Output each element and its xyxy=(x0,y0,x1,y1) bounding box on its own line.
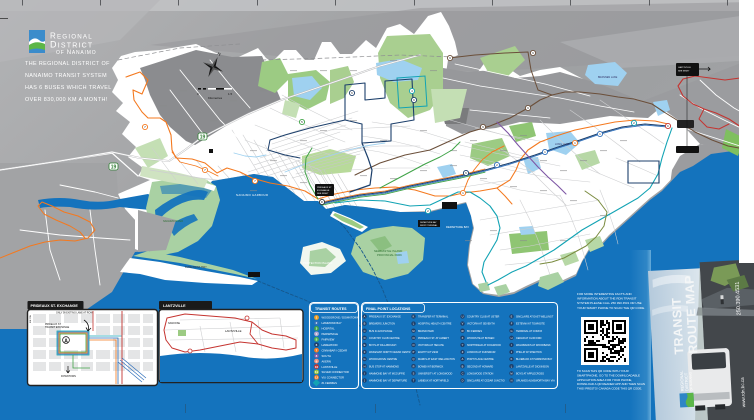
svg-text:R: R xyxy=(413,364,415,368)
svg-text:BRANNEN LAKE: BRANNEN LAKE xyxy=(598,76,618,79)
svg-text:COUNTRY CLUB CENTRE: COUNTRY CLUB CENTRE xyxy=(369,337,400,340)
svg-text:B: B xyxy=(462,364,464,368)
svg-text:NANAIMO TRANSIT SYSTEM: NANAIMO TRANSIT SYSTEM xyxy=(25,73,107,79)
svg-text:BRAND PARK: BRAND PARK xyxy=(418,330,434,333)
svg-text:S: S xyxy=(413,371,415,375)
svg-text:G: G xyxy=(363,357,365,361)
svg-text:NORTHFIELD AT DOGWOOD: NORTHFIELD AT DOGWOOD xyxy=(467,344,501,347)
svg-text:PRIDEAUX ST. EXCHANGE: PRIDEAUX ST. EXCHANGE xyxy=(369,316,401,319)
svg-text:TRANSIT EXCHANGE: TRANSIT EXCHANGE xyxy=(45,326,70,329)
svg-text:NANOOSE: NANOOSE xyxy=(168,322,180,325)
svg-text:Kilometres: Kilometres xyxy=(208,96,223,100)
svg-text:CINNABAR / CEDAR: CINNABAR / CEDAR xyxy=(322,348,348,352)
svg-text:C: C xyxy=(462,371,464,375)
svg-text:DOWNTOWN: DOWNTOWN xyxy=(61,375,76,378)
svg-text:HAS 6 BUSES WHICH TRAVEL: HAS 6 BUSES WHICH TRAVEL xyxy=(25,85,112,91)
svg-text:BLUEBACK AT HAMMOND BAY: BLUEBACK AT HAMMOND BAY xyxy=(516,358,553,361)
svg-text:N: N xyxy=(413,336,415,340)
svg-text:HAMMOND BAY AT DEPARTURE: HAMMOND BAY AT DEPARTURE xyxy=(369,380,407,383)
svg-text:NANAIMO RIVER: NANAIMO RIVER xyxy=(163,220,183,223)
svg-text:WALDBANKS AT WOODBANK: WALDBANKS AT WOODBANK xyxy=(516,344,551,347)
svg-text:Q: Q xyxy=(412,357,414,361)
svg-text:BUS STOP AT HAMMOND: BUS STOP AT HAMMOND xyxy=(369,365,399,368)
svg-text:UPLANDS ALMSWORTH BAY VIA: UPLANDS ALMSWORTH BAY VIA xyxy=(516,380,555,383)
svg-text:A: A xyxy=(64,338,68,344)
svg-text:LANTZVILLE: LANTZVILLE xyxy=(678,66,691,69)
svg-text:O: O xyxy=(412,343,414,347)
svg-text:YOUR SMART PHONE TO SCAN THE Q: YOUR SMART PHONE TO SCAN THE QR CODE. xyxy=(577,306,645,310)
svg-text:SINCLAIRS AT CEDAR JUNCTIO: SINCLAIRS AT CEDAR JUNCTIO xyxy=(467,380,505,383)
svg-text:HAMMOND BAY AT MCGUFFIE: HAMMOND BAY AT MCGUFFIE xyxy=(369,372,405,375)
svg-text:LONG LAKE: LONG LAKE xyxy=(555,143,570,146)
svg-text:LANTZVILLE: LANTZVILLE xyxy=(163,304,186,308)
svg-text:EXCHANGE: EXCHANGE xyxy=(317,189,330,192)
svg-text:11: 11 xyxy=(315,370,319,374)
svg-text:PRIDEAUX ST: PRIDEAUX ST xyxy=(317,186,332,189)
svg-text:EIGHTH AT VIEW: EIGHTH AT VIEW xyxy=(418,351,439,354)
svg-text:WAKESIAH NORTH CEDAR CENTR: WAKESIAH NORTH CEDAR CENTR xyxy=(369,351,411,354)
svg-text:FERRY TERMINAL: FERRY TERMINAL xyxy=(420,224,438,227)
svg-text:C: C xyxy=(364,329,366,333)
svg-text:APPLICATION AREA FOR YOUR PHON: APPLICATION AREA FOR YOUR PHONE, xyxy=(577,378,632,382)
svg-text:THE REGIONAL DISTRICT OF: THE REGIONAL DISTRICT OF xyxy=(25,61,110,67)
svg-text:DUKE POINT HWY: DUKE POINT HWY xyxy=(185,266,207,269)
svg-text:ONLY 99 EXITING LANE AT ROW: ONLY 99 EXITING LANE AT ROW xyxy=(56,312,93,315)
svg-text:COUNTRY CLUB AT USTER: COUNTRY CLUB AT USTER xyxy=(467,316,500,319)
svg-text:OVER 830,000 KM A MONTH!: OVER 830,000 KM A MONTH! xyxy=(25,97,108,103)
svg-text:E: E xyxy=(511,315,513,319)
svg-text:AKERN: AKERN xyxy=(322,359,331,363)
svg-text:WOODGROVE CENTRE: WOODGROVE CENTRE xyxy=(369,358,397,361)
svg-text:K: K xyxy=(511,357,513,361)
svg-text:VICTORIA AT SEVENTH: VICTORIA AT SEVENTH xyxy=(467,323,495,326)
svg-text:M: M xyxy=(412,329,414,333)
svg-text:TERMINAL AT COMOX: TERMINAL AT COMOX xyxy=(516,330,543,333)
svg-text:D: D xyxy=(364,336,366,340)
svg-text:K: K xyxy=(413,315,415,319)
svg-text:H: H xyxy=(364,364,366,368)
svg-text:12: 12 xyxy=(315,376,319,380)
svg-text:WOODSITE AT BOWEN: WOODSITE AT BOWEN xyxy=(467,337,494,340)
svg-text:LANTZVILLE AT DICKINSON: LANTZVILLE AT DICKINSON xyxy=(516,365,549,368)
svg-text:MILTON: MILTON xyxy=(30,315,32,323)
svg-text:FOR MORE INTERESTING FACTS AND: FOR MORE INTERESTING FACTS AND xyxy=(577,292,633,296)
svg-text:19: 19 xyxy=(111,165,117,171)
svg-text:A: A xyxy=(462,357,464,361)
svg-text:H: H xyxy=(511,336,513,340)
svg-text:G: G xyxy=(510,329,512,333)
svg-text:PRIDEAUX ST. EXCHANGE: PRIDEAUX ST. EXCHANGE xyxy=(31,304,79,308)
svg-text:VIU CONNECTOR: VIU CONNECTOR xyxy=(322,376,345,380)
svg-text:V: V xyxy=(462,322,464,326)
svg-text:MARKS AT EAST WELLINGTON: MARKS AT EAST WELLINGTON xyxy=(418,358,455,361)
svg-text:DEPARTURE BAY: DEPARTURE BAY xyxy=(446,225,469,229)
svg-text:CEDAR AT CLIFFORD: CEDAR AT CLIFFORD xyxy=(516,337,542,340)
svg-text:BREWERS JUNCTION: BREWERS JUNCTION xyxy=(369,323,395,326)
svg-text:SYSTEM PLEASE CALL 250 390 453: SYSTEM PLEASE CALL 250 390 4531 OR USE xyxy=(577,301,642,305)
svg-text:P: P xyxy=(413,350,415,354)
svg-text:HOSPITAL: HOSPITAL xyxy=(322,327,336,331)
svg-text:PORT PLACE CENTRE: PORT PLACE CENTRE xyxy=(467,358,494,361)
svg-text:PROTECTION ISLAND: PROTECTION ISLAND xyxy=(303,261,332,265)
svg-text:UNIVERSITY AT LONGWOOD: UNIVERSITY AT LONGWOOD xyxy=(418,372,453,375)
svg-text:U: U xyxy=(462,315,464,319)
svg-text:THIS! PRESTO! CANADA CODE THIS: THIS! PRESTO! CANADA CODE THIS QR CODE. xyxy=(577,387,642,391)
svg-text:10: 10 xyxy=(315,365,319,369)
svg-text:E: E xyxy=(364,343,366,347)
svg-text:PERIWINKLE: PERIWINKLE xyxy=(322,332,339,336)
svg-text:#1 FERRIES: #1 FERRIES xyxy=(322,381,338,385)
svg-text:OF NANAIMO: OF NANAIMO xyxy=(56,50,96,56)
svg-text:LONGWOOD STATION: LONGWOOD STATION xyxy=(467,372,493,375)
svg-text:INFORMATION ABOUT THE RDN TRAN: INFORMATION ABOUT THE RDN TRANSIT xyxy=(577,297,637,301)
svg-text:SOUTH: SOUTH xyxy=(322,354,331,358)
svg-text:DOWNLOAD A QR READER APP AND T: DOWNLOAD A QR READER APP AND THEN SCAN xyxy=(577,382,645,386)
svg-text:PROVINCIAL PARK: PROVINCIAL PARK xyxy=(377,253,402,257)
svg-text:SEE INSET: SEE INSET xyxy=(678,71,690,73)
svg-text:HAMMOND BAY: HAMMOND BAY xyxy=(322,321,342,325)
svg-text:SEE INSET: SEE INSET xyxy=(317,193,329,195)
svg-text:PRIDEAUX ST. AT ALBERT: PRIDEAUX ST. AT ALBERT xyxy=(418,337,449,340)
svg-text:BOYS AT DILLABOUGH: BOYS AT DILLABOUGH xyxy=(369,344,396,347)
svg-text:SINCLAIRS AT EAST WELLINGT: SINCLAIRS AT EAST WELLINGT xyxy=(516,316,554,319)
svg-text:VICTORIA AT HECATE: VICTORIA AT HECATE xyxy=(418,344,444,347)
svg-text:FINAL POINT LOCATIONS: FINAL POINT LOCATIONS xyxy=(366,307,411,311)
svg-text:Y: Y xyxy=(462,343,464,347)
svg-text:BUS 41 EXCHANGE: BUS 41 EXCHANGE xyxy=(369,330,393,333)
svg-text:ESTEVAN AT TOWNSITE: ESTEVAN AT TOWNSITE xyxy=(516,323,545,326)
svg-text:X: X xyxy=(462,336,464,340)
svg-text:BC FERRIES: BC FERRIES xyxy=(467,330,482,333)
svg-text:B: B xyxy=(364,322,366,326)
svg-text:DEPARTURE BAY: DEPARTURE BAY xyxy=(420,221,437,224)
svg-text:LABIEUX AT NORTHFIELD: LABIEUX AT NORTHFIELD xyxy=(418,380,449,383)
svg-text:LONDON AT DUNSMUIR: LONDON AT DUNSMUIR xyxy=(467,351,496,354)
svg-text:TRANSFER AT TERMINAL: TRANSFER AT TERMINAL xyxy=(418,316,449,319)
svg-text:19: 19 xyxy=(200,135,206,141)
svg-text:NANAIMO HARBOUR: NANAIMO HARBOUR xyxy=(236,193,268,197)
svg-text:LANTZVILLE: LANTZVILLE xyxy=(225,329,242,333)
svg-text:SECOND AT HOWARD: SECOND AT HOWARD xyxy=(467,365,493,368)
svg-text:BOWEN AT BERWICK: BOWEN AT BERWICK xyxy=(418,365,444,368)
svg-text:A: A xyxy=(364,315,366,319)
svg-text:M: M xyxy=(510,371,512,375)
svg-text:TO SCAN THIS QR CODE WITH YOUR: TO SCAN THIS QR CODE WITH YOUR xyxy=(577,369,629,373)
svg-text:1.5: 1.5 xyxy=(228,92,233,96)
svg-text:HOSPITAL HEALTH CENTRE: HOSPITAL HEALTH CENTRE xyxy=(418,323,452,326)
svg-text:SILVER CONNECTOR: SILVER CONNECTOR xyxy=(322,370,349,374)
svg-text:N: N xyxy=(511,379,513,383)
svg-text:TRANSIT ROUTES: TRANSIT ROUTES xyxy=(315,307,347,311)
svg-text:FAIRVIEW: FAIRVIEW xyxy=(322,338,335,342)
svg-text:LANTZVILLE: LANTZVILLE xyxy=(322,365,338,369)
svg-text:BOYS AT APPLECROSS: BOYS AT APPLECROSS xyxy=(516,372,544,375)
svg-text:HAREWOOD: HAREWOOD xyxy=(322,343,338,347)
svg-text:PHILLIP AT SHENTON: PHILLIP AT SHENTON xyxy=(516,351,542,354)
svg-text:D: D xyxy=(462,379,464,383)
svg-text:WOODGROVE / DOWNTOWN: WOODGROVE / DOWNTOWN xyxy=(322,316,359,320)
svg-text:SMARTPHONE, GO TO THE DOWNLOAD: SMARTPHONE, GO TO THE DOWNLOADABLE xyxy=(577,373,640,377)
